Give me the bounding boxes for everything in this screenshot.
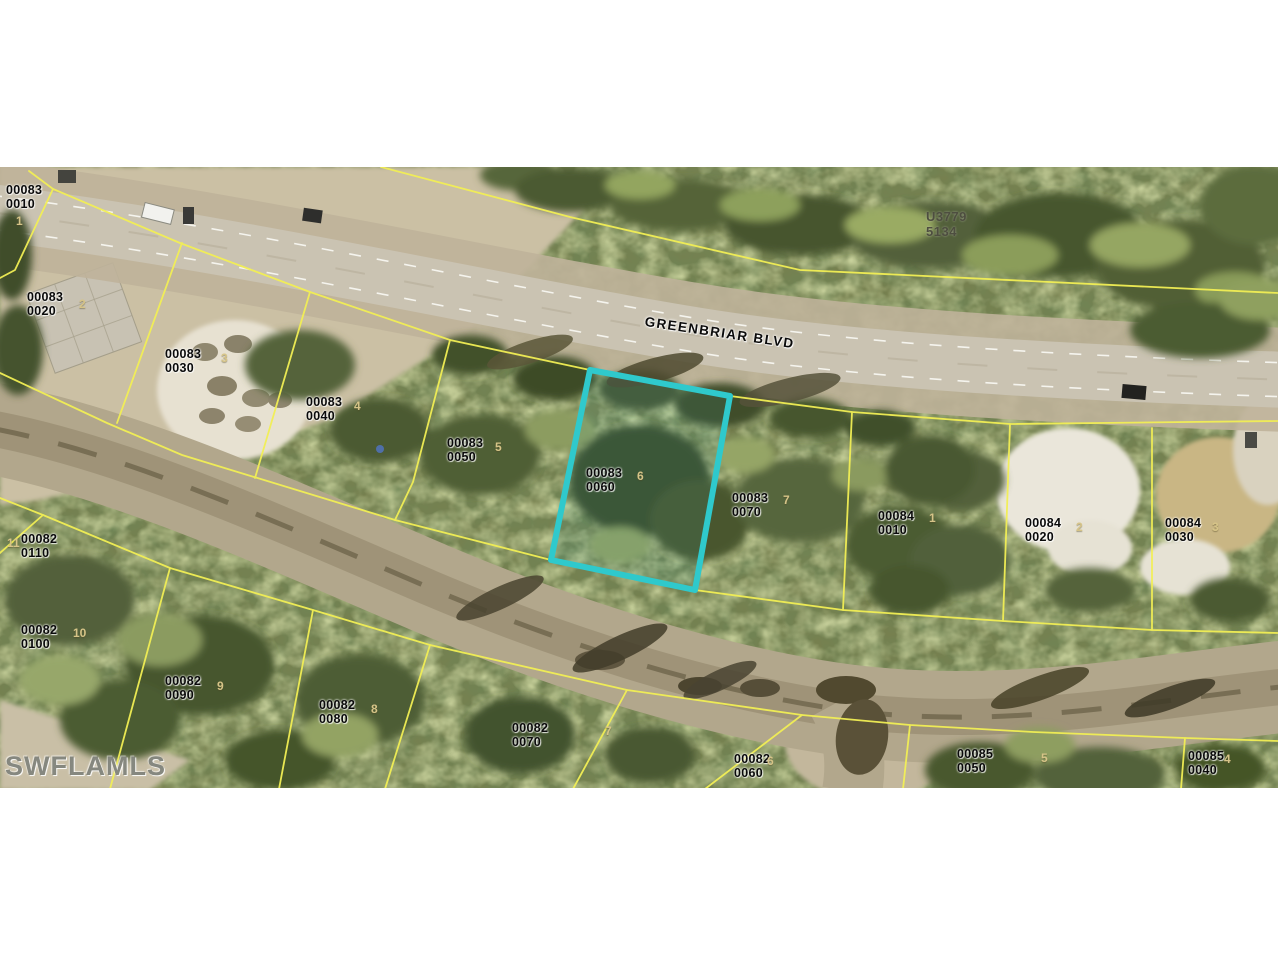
black-car-east (1121, 384, 1146, 400)
mls-aerial-parcel-map-screenshot: 000830010 000830020 000830030 000830040 … (0, 0, 1278, 958)
dark-vehicle-east (1245, 432, 1257, 448)
map-image (0, 167, 1278, 788)
dark-truck (183, 207, 194, 224)
blue-object (376, 445, 384, 453)
dark-object (58, 170, 76, 183)
black-car (302, 208, 323, 224)
aerial-map (0, 167, 1278, 788)
